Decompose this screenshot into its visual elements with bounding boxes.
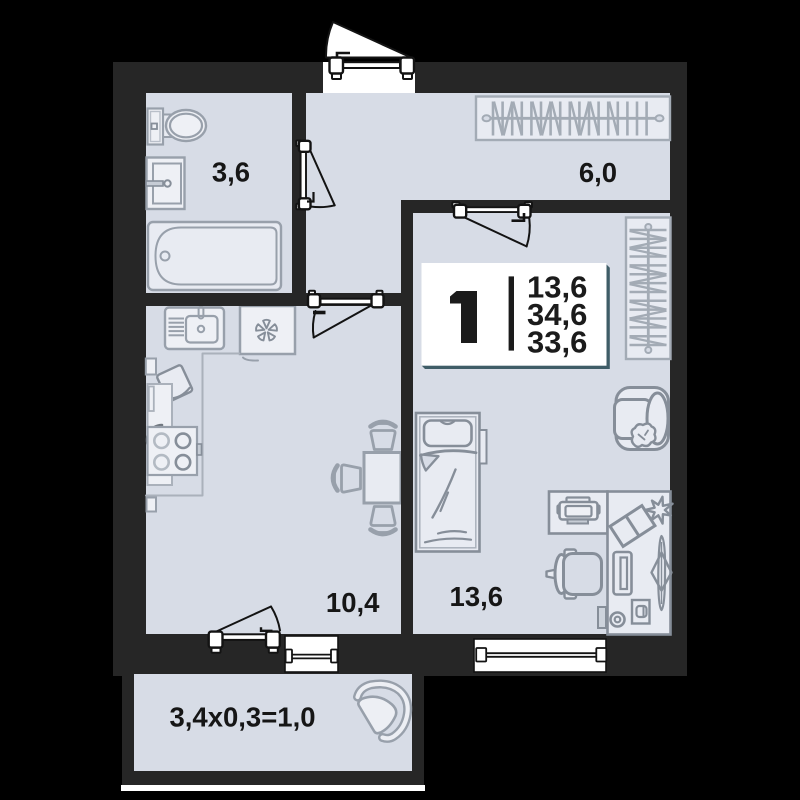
svg-text:33,6: 33,6 (527, 324, 587, 359)
svg-text:13,6: 13,6 (450, 581, 504, 612)
svg-text:6,0: 6,0 (579, 157, 617, 188)
svg-text:10,4: 10,4 (326, 587, 380, 618)
svg-text:3,6: 3,6 (212, 157, 250, 188)
svg-text:3,4х0,3=1,0: 3,4х0,3=1,0 (169, 702, 315, 733)
